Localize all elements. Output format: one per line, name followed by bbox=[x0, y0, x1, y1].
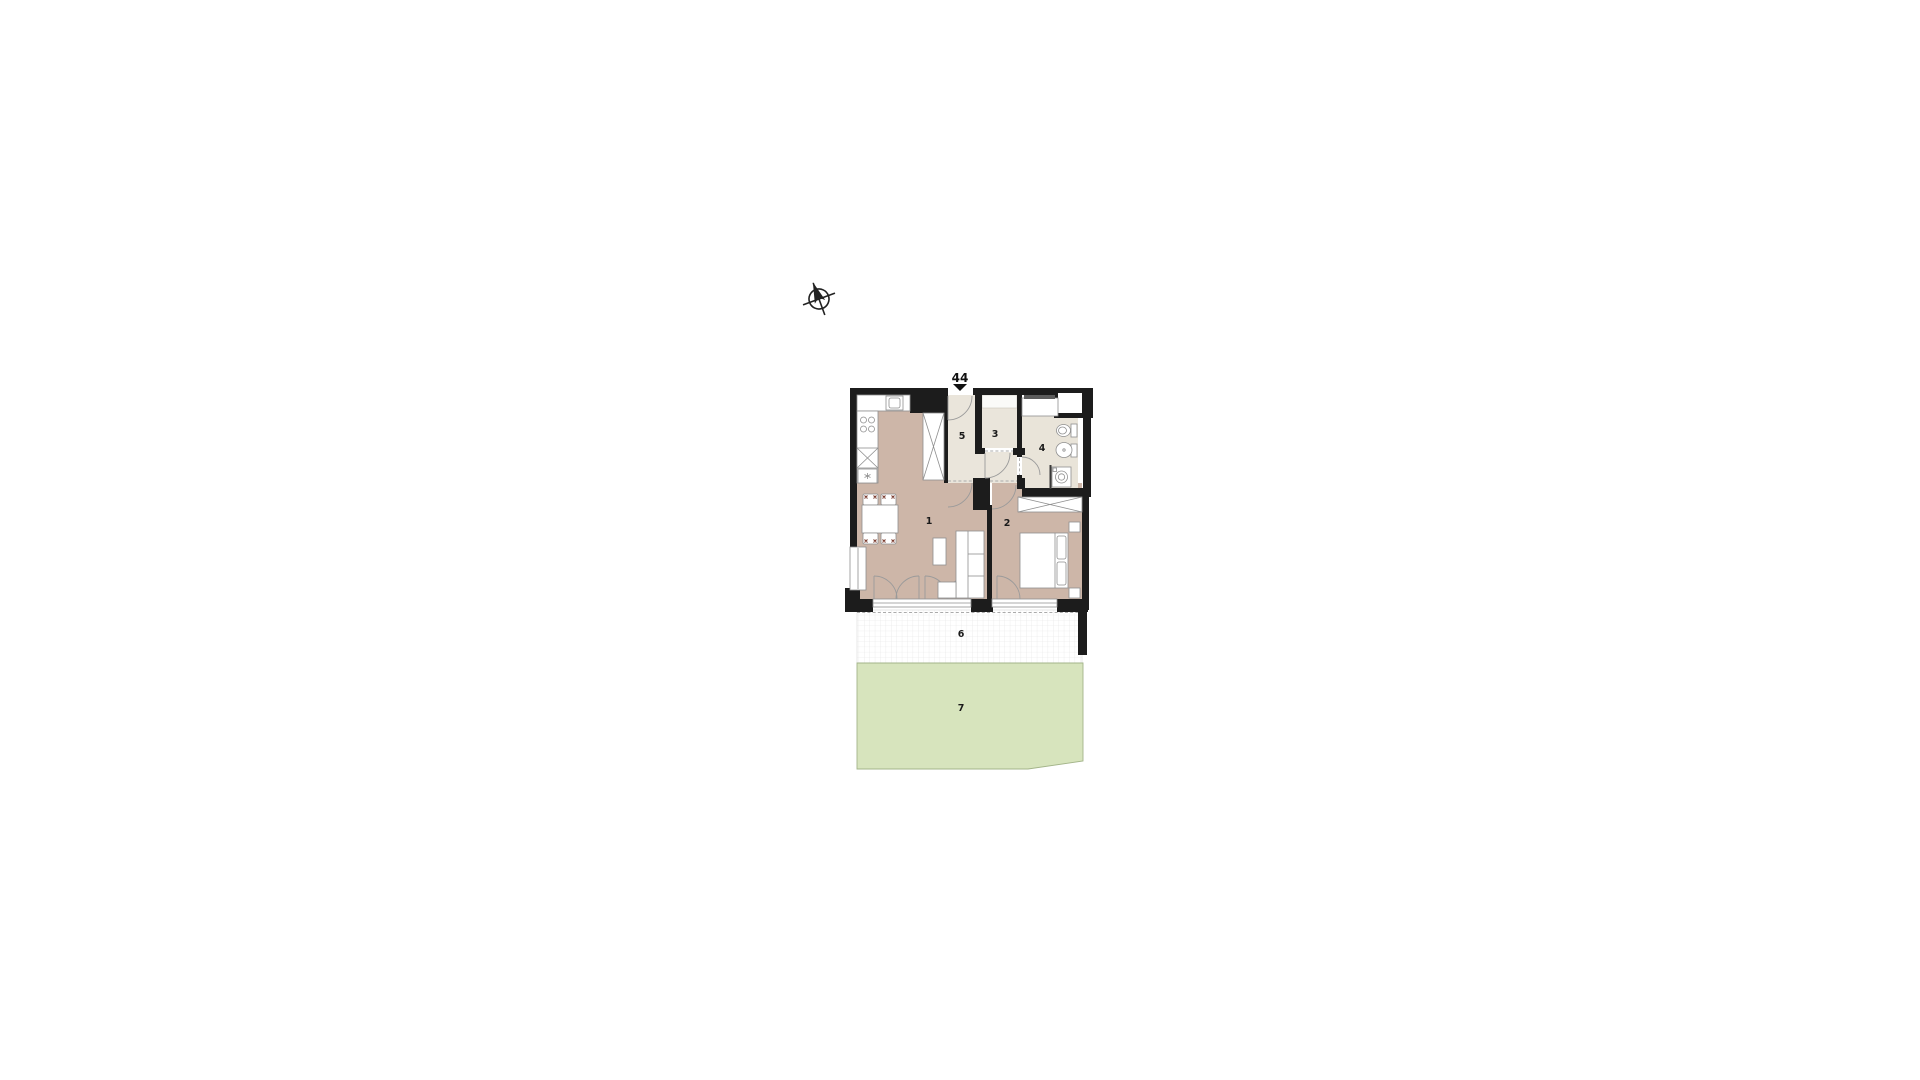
wall-entry-block bbox=[910, 388, 948, 413]
wall-below-room3-left bbox=[975, 448, 985, 454]
hall-closet bbox=[923, 413, 944, 480]
wall-top-mid bbox=[973, 388, 1057, 395]
wall-stub-right bbox=[1057, 599, 1088, 612]
room-label-7: 7 bbox=[958, 703, 965, 714]
wall-right-bed bbox=[1082, 497, 1089, 610]
exterior-niche bbox=[1058, 393, 1082, 413]
dining-chair bbox=[881, 494, 896, 505]
room-label-4: 4 bbox=[1039, 443, 1046, 454]
terrace bbox=[857, 610, 1082, 663]
dining-chair bbox=[881, 533, 896, 544]
unit-number-label: 44 bbox=[952, 371, 969, 385]
toilet bbox=[1057, 424, 1078, 437]
window-terrace-room1 bbox=[873, 599, 971, 607]
wall-top-left bbox=[850, 388, 910, 395]
room3-shelf bbox=[982, 395, 1017, 408]
coffee-table bbox=[933, 538, 946, 565]
wall-niche-bottom bbox=[1054, 413, 1084, 418]
kitchen-sink bbox=[886, 396, 903, 410]
washing-machine bbox=[1050, 465, 1072, 489]
fridge bbox=[857, 448, 878, 468]
dishwasher bbox=[858, 469, 877, 483]
wall-right-bath bbox=[1083, 395, 1091, 497]
floor-plan-page: 44 1 2 3 4 5 6 7 bbox=[0, 0, 1920, 1080]
wall-room5-room3 bbox=[975, 395, 982, 448]
garden-area bbox=[857, 663, 1083, 769]
wall-stub-mid bbox=[971, 599, 993, 612]
wall-bath-bottom bbox=[1022, 488, 1091, 497]
wall-left bbox=[850, 388, 857, 547]
compass-north-icon bbox=[797, 276, 841, 321]
room-label-2: 2 bbox=[1004, 518, 1011, 529]
bath-vanity bbox=[1022, 398, 1058, 416]
wall-room5-left bbox=[944, 413, 948, 483]
room-label-5: 5 bbox=[959, 431, 966, 442]
nightstand bbox=[1069, 588, 1080, 598]
terrace-tiles bbox=[857, 610, 1082, 663]
nightstand bbox=[1069, 522, 1080, 532]
dining-table bbox=[862, 505, 898, 533]
room-label-1: 1 bbox=[926, 516, 933, 527]
wardrobe bbox=[1018, 497, 1082, 512]
wall-terrace-right bbox=[1078, 612, 1087, 655]
entrance-arrow-icon bbox=[953, 384, 967, 391]
bathroom-sink bbox=[1056, 443, 1077, 458]
sofa-group bbox=[933, 531, 984, 598]
window-left-wall bbox=[850, 547, 866, 590]
bed bbox=[1020, 533, 1068, 588]
dining-chair bbox=[863, 533, 878, 544]
wall-hall-right bbox=[1017, 478, 1025, 488]
dining-chair bbox=[863, 494, 878, 505]
wall-stub-left-b bbox=[845, 599, 873, 612]
room-label-6: 6 bbox=[958, 629, 965, 640]
floor-plan-drawing: 44 1 2 3 4 5 6 7 bbox=[0, 0, 1920, 1080]
wall-room1-room2 bbox=[987, 505, 992, 600]
room-label-3: 3 bbox=[992, 429, 999, 440]
wall-bath-left-upper bbox=[1017, 395, 1022, 457]
garden bbox=[857, 663, 1083, 769]
window-terrace-room2 bbox=[992, 599, 1057, 607]
bath-radiator bbox=[1024, 395, 1055, 399]
